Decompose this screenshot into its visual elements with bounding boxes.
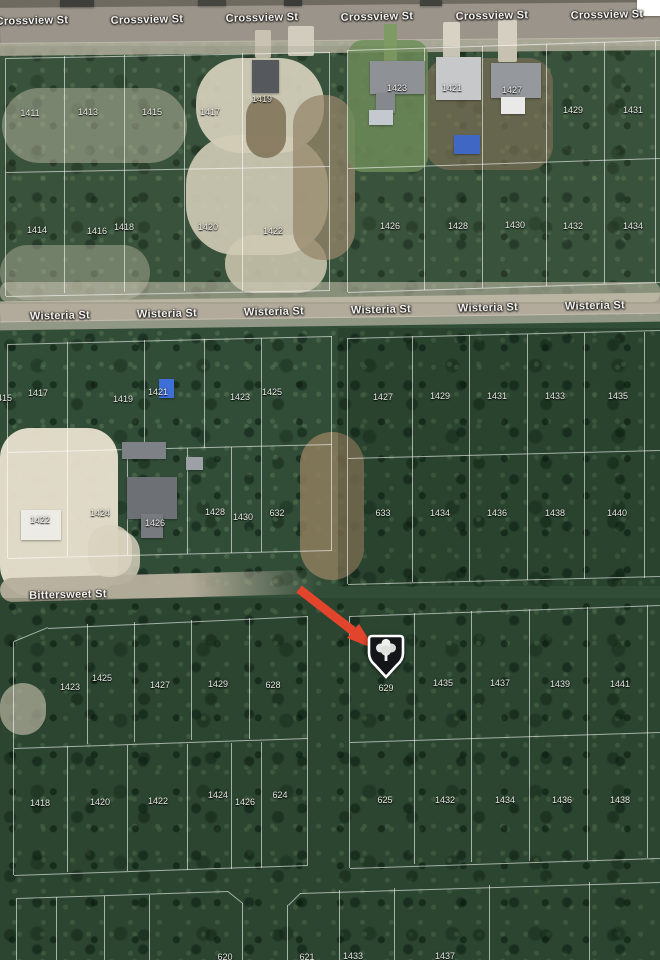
shed — [122, 442, 166, 459]
lot-number-label: 624 — [272, 790, 287, 800]
lot-number-label: 1424 — [208, 790, 228, 800]
parcel-boundary-line — [394, 888, 395, 960]
shed — [186, 457, 203, 470]
parcel-boundary-line — [261, 447, 262, 552]
street-label-bittersweet-st: Bittersweet St — [29, 588, 107, 602]
parcel-boundary-line — [349, 616, 350, 868]
lot-number-label: 1430 — [233, 512, 253, 522]
parcel-boundary-line — [329, 52, 330, 290]
parcel-boundary-line — [149, 895, 150, 960]
lot-number-label: 625 — [377, 795, 392, 805]
parcel-boundary-line — [307, 616, 308, 865]
lot-number-label: 632 — [269, 508, 284, 518]
lot-number-label: 621 — [299, 952, 314, 960]
lot-number-label: 1421 — [148, 387, 168, 397]
lot-number-label: 1428 — [448, 221, 468, 231]
lot-number-label: 1423 — [60, 682, 80, 692]
parcel-boundary-line — [589, 882, 590, 960]
lot-number-label: 633 — [375, 508, 390, 518]
lot-number-label: 1417 — [200, 107, 220, 117]
garage-lot-1427 — [501, 97, 525, 114]
lot-number-label: 1419 — [113, 394, 133, 404]
lot-number-label: 1438 — [610, 795, 630, 805]
parcel-boundary-line — [8, 336, 332, 345]
lot-number-label: 1432 — [435, 795, 455, 805]
lot-number-label: 1439 — [550, 679, 570, 689]
parcel-boundary-line — [489, 885, 490, 960]
lot-number-label: 1420 — [90, 797, 110, 807]
street-label-crossview-st: Crossview St — [226, 11, 299, 25]
street-label-crossview-st: Crossview St — [571, 8, 644, 22]
parcel-boundary-line — [604, 42, 605, 284]
lot-number-label: 1428 — [205, 507, 225, 517]
parcel-boundary-line — [16, 898, 17, 960]
lot-number-label: 1436 — [552, 795, 572, 805]
lot-number-label: 628 — [265, 680, 280, 690]
lot-number-label: 1426 — [145, 518, 165, 528]
lot-number-label: 1426 — [380, 221, 400, 231]
parcel-boundary-line — [144, 340, 145, 449]
street-label-wisteria-st: Wisteria St — [458, 301, 518, 314]
street-label-crossview-st: Crossview St — [0, 14, 68, 28]
parcel-boundary-line — [187, 744, 188, 870]
location-marker-pin[interactable] — [366, 633, 406, 679]
lot-number-label: 1432 — [563, 221, 583, 231]
lot-number-label: 1425 — [92, 673, 112, 683]
parcel-boundary-line — [584, 333, 585, 579]
lot-number-label: 1411 — [20, 108, 39, 118]
street-label-wisteria-st: Wisteria St — [30, 309, 90, 322]
lot-number-label: 1438 — [545, 508, 565, 518]
parcel-boundary-line — [134, 622, 135, 742]
lot-number-label: 1433 — [545, 391, 565, 401]
street-label-wisteria-st: Wisteria St — [137, 307, 197, 320]
vehicle — [60, 0, 94, 7]
blue-tarp — [454, 135, 480, 154]
map-scene: Crossview StCrossview StCrossview StCros… — [0, 0, 660, 960]
parcel-boundary-line — [231, 447, 232, 553]
parcel-boundary-line — [104, 896, 105, 960]
vehicle — [420, 0, 442, 6]
lot-number-label: 1431 — [623, 105, 643, 115]
lot-number-label: 1413 — [78, 107, 98, 117]
parcel-boundary-line — [64, 56, 65, 293]
street-label-wisteria-st: Wisteria St — [565, 299, 625, 312]
lot-number-label: 1427 — [373, 392, 393, 402]
lot-number-label: 1429 — [563, 105, 583, 115]
parcel-boundary-line — [527, 334, 528, 580]
lot-number-label: 1418 — [114, 222, 134, 232]
parcel-boundary-line — [67, 450, 68, 556]
house-lot-1426 — [127, 477, 177, 519]
lot-number-label: 1431 — [487, 391, 507, 401]
lot-number-label: 1434 — [495, 795, 515, 805]
lot-number-label: 1441 — [610, 679, 630, 689]
shade-overlay — [0, 46, 660, 304]
parcel-boundary-line — [231, 743, 232, 869]
lot-number-label: 1436 — [487, 508, 507, 518]
satellite-map[interactable]: Crossview StCrossview StCrossview StCros… — [0, 0, 660, 960]
parcel-boundary-line — [529, 609, 530, 861]
lot-number-label: 1421 — [442, 83, 462, 93]
lot-number-label: 629 — [378, 683, 393, 693]
parcel-boundary-line — [347, 50, 348, 292]
parcel-boundary-line — [331, 336, 332, 550]
patio-lot-1423 — [369, 110, 393, 125]
parcel-boundary-line — [261, 742, 262, 868]
lot-number-label: 1434 — [430, 508, 450, 518]
driveway — [88, 525, 132, 577]
parcel-boundary-line — [482, 46, 483, 288]
lot-number-label: 1419 — [252, 94, 272, 104]
parcel-boundary-line — [13, 642, 14, 875]
parcel-boundary-line — [56, 897, 57, 960]
parcel-boundary-line — [469, 335, 470, 581]
parcel-boundary-line — [87, 624, 88, 744]
parcel-boundary-line — [67, 746, 68, 872]
parcel-boundary-line — [546, 44, 547, 286]
lot-number-label: 1425 — [262, 387, 282, 397]
lot-number-label: 1429 — [430, 391, 450, 401]
parcel-boundary-line — [644, 332, 645, 578]
lot-number-label: 1418 — [30, 798, 50, 808]
parcel-boundary-line — [191, 620, 192, 740]
lot-number-label: 1430 — [505, 220, 525, 230]
lot-number-label: 1435 — [608, 391, 628, 401]
parcel-boundary-line — [242, 53, 243, 291]
parcel-boundary-line — [7, 344, 8, 558]
street-label-crossview-st: Crossview St — [456, 9, 529, 23]
street-label-wisteria-st: Wisteria St — [351, 303, 411, 316]
lot-number-label: 1423 — [230, 392, 250, 402]
lot-number-label: 1440 — [607, 508, 627, 518]
house-lot-1421 — [436, 57, 481, 100]
parcel-boundary-line — [67, 342, 68, 450]
lot-number-label: 1435 — [433, 678, 453, 688]
marker-pin-icon — [366, 633, 406, 679]
lot-number-label: 1422 — [148, 796, 168, 806]
lot-number-label: 1424 — [90, 508, 110, 518]
parcel-boundary-line — [124, 55, 125, 292]
lot-number-label: 1429 — [208, 679, 228, 689]
lot-number-label: 1434 — [623, 221, 643, 231]
lot-number-label: 1422 — [30, 515, 50, 525]
lot-number-label: 1437 — [435, 951, 455, 960]
parcel-boundary-line — [287, 905, 288, 960]
lot-number-label: 1423 — [387, 83, 407, 93]
lot-number-label: 1433 — [343, 951, 363, 960]
parcel-boundary-line — [655, 41, 656, 283]
lot-number-label: 1420 — [198, 222, 218, 232]
lot-number-label: 1427 — [150, 680, 170, 690]
parcel-boundary-line — [5, 58, 6, 296]
parcel-boundary-line — [242, 903, 243, 960]
lot-number-label: 1417 — [28, 388, 48, 398]
vehicle — [284, 0, 302, 6]
street-label-crossview-st: Crossview St — [111, 13, 184, 27]
lot-number-label: 1415 — [142, 107, 162, 117]
lot-number-label: 1427 — [502, 85, 522, 95]
parcel-boundary-line — [249, 618, 250, 739]
lot-number-label: 1422 — [263, 226, 283, 236]
parcel-boundary-line — [414, 613, 415, 864]
barn-lot-1419 — [252, 60, 279, 93]
lot-number-label: 1416 — [87, 226, 107, 236]
parcel-boundary-line — [471, 611, 472, 862]
lot-number-label: 1415 — [0, 393, 12, 403]
lot-number-label: 1414 — [27, 225, 47, 235]
parcel-boundary-line — [204, 339, 205, 448]
lot-number-label: 620 — [217, 952, 232, 960]
parcel-boundary-line — [339, 890, 340, 960]
parcel-boundary-line — [347, 338, 348, 584]
vehicle — [198, 0, 226, 6]
parcel-boundary-line — [127, 745, 128, 871]
parcel-boundary-line — [587, 607, 588, 860]
lot-number-label: 1437 — [490, 678, 510, 688]
parcel-boundary-line — [184, 54, 185, 291]
shade-overlay — [0, 598, 660, 960]
parcel-boundary-line — [647, 605, 648, 858]
street-label-wisteria-st: Wisteria St — [244, 305, 304, 318]
street-label-crossview-st: Crossview St — [341, 10, 414, 24]
parcel-boundary-line — [412, 336, 413, 582]
lot-number-label: 1426 — [235, 797, 255, 807]
